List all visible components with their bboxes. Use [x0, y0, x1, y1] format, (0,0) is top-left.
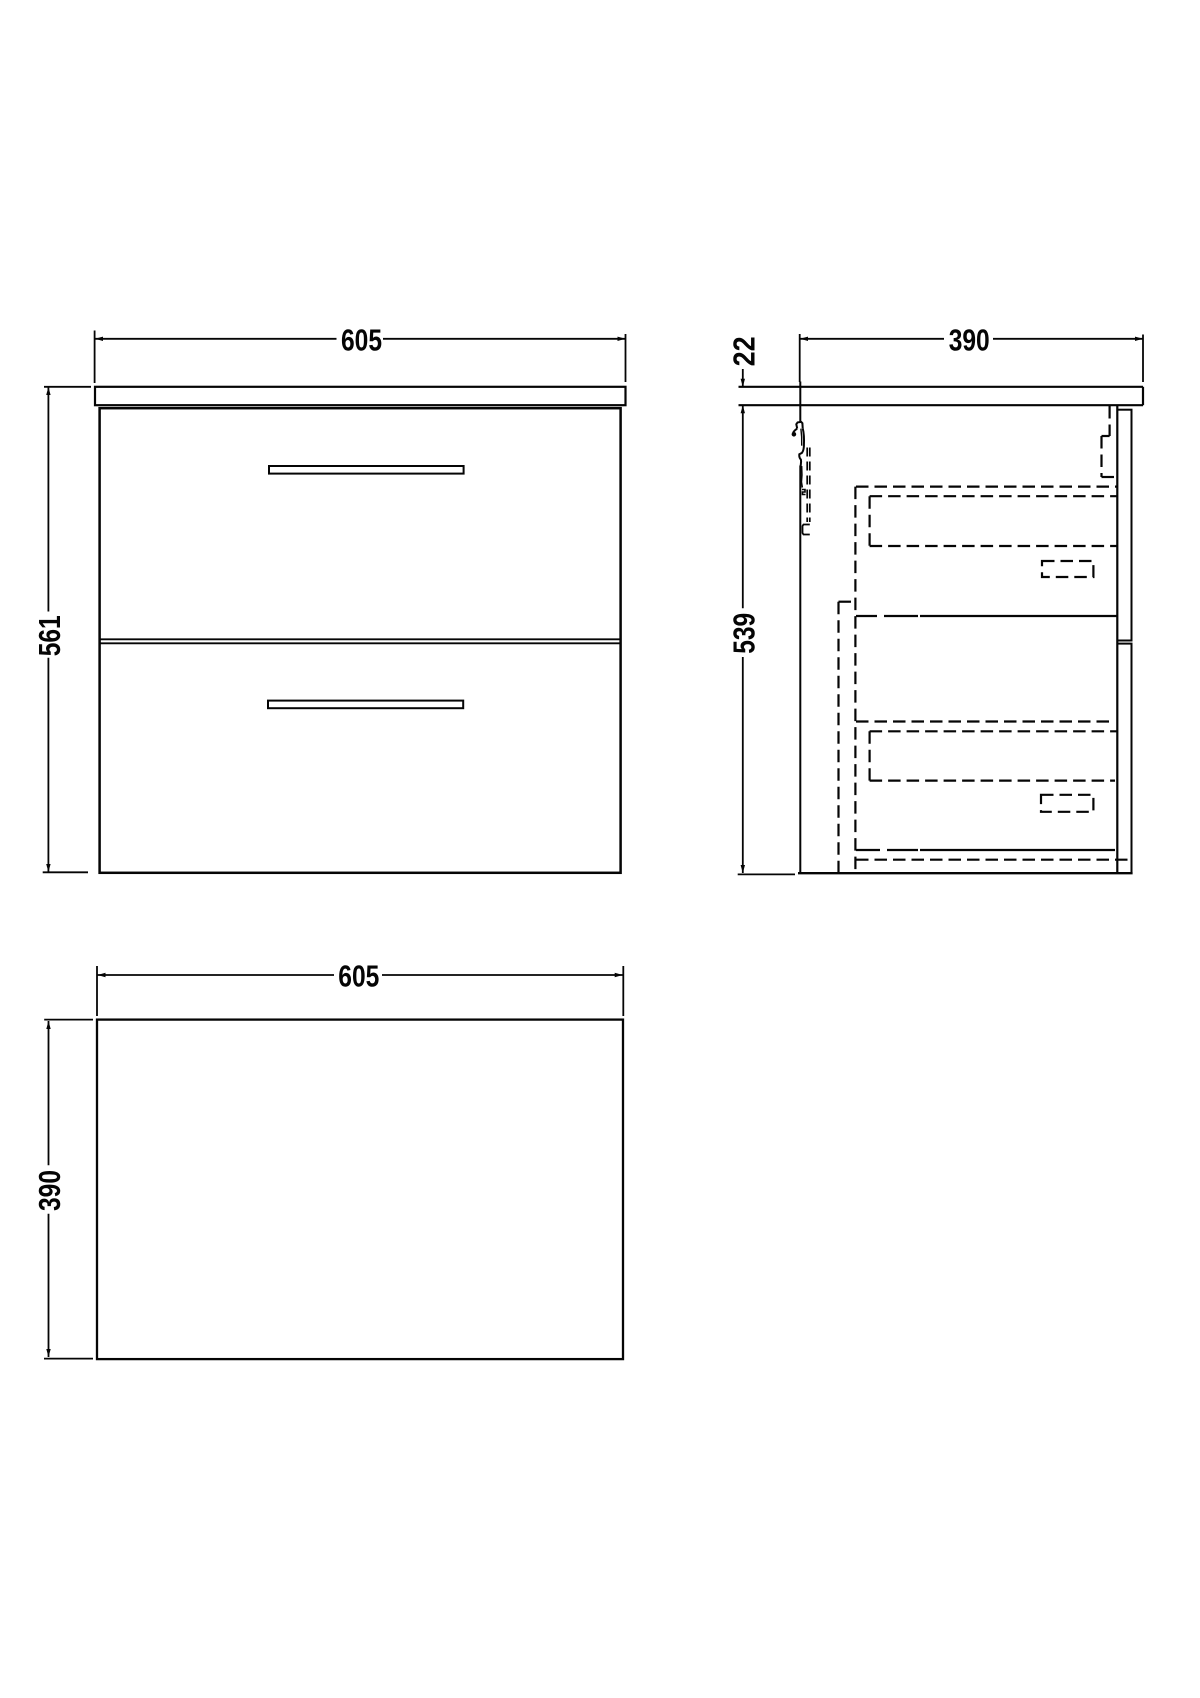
svg-text:605: 605 — [338, 959, 379, 994]
svg-text:390: 390 — [949, 323, 990, 358]
svg-text:539: 539 — [727, 613, 762, 654]
svg-text:605: 605 — [341, 323, 382, 358]
svg-text:22: 22 — [727, 336, 762, 366]
svg-text:561: 561 — [32, 615, 67, 656]
svg-text:390: 390 — [32, 1170, 67, 1211]
